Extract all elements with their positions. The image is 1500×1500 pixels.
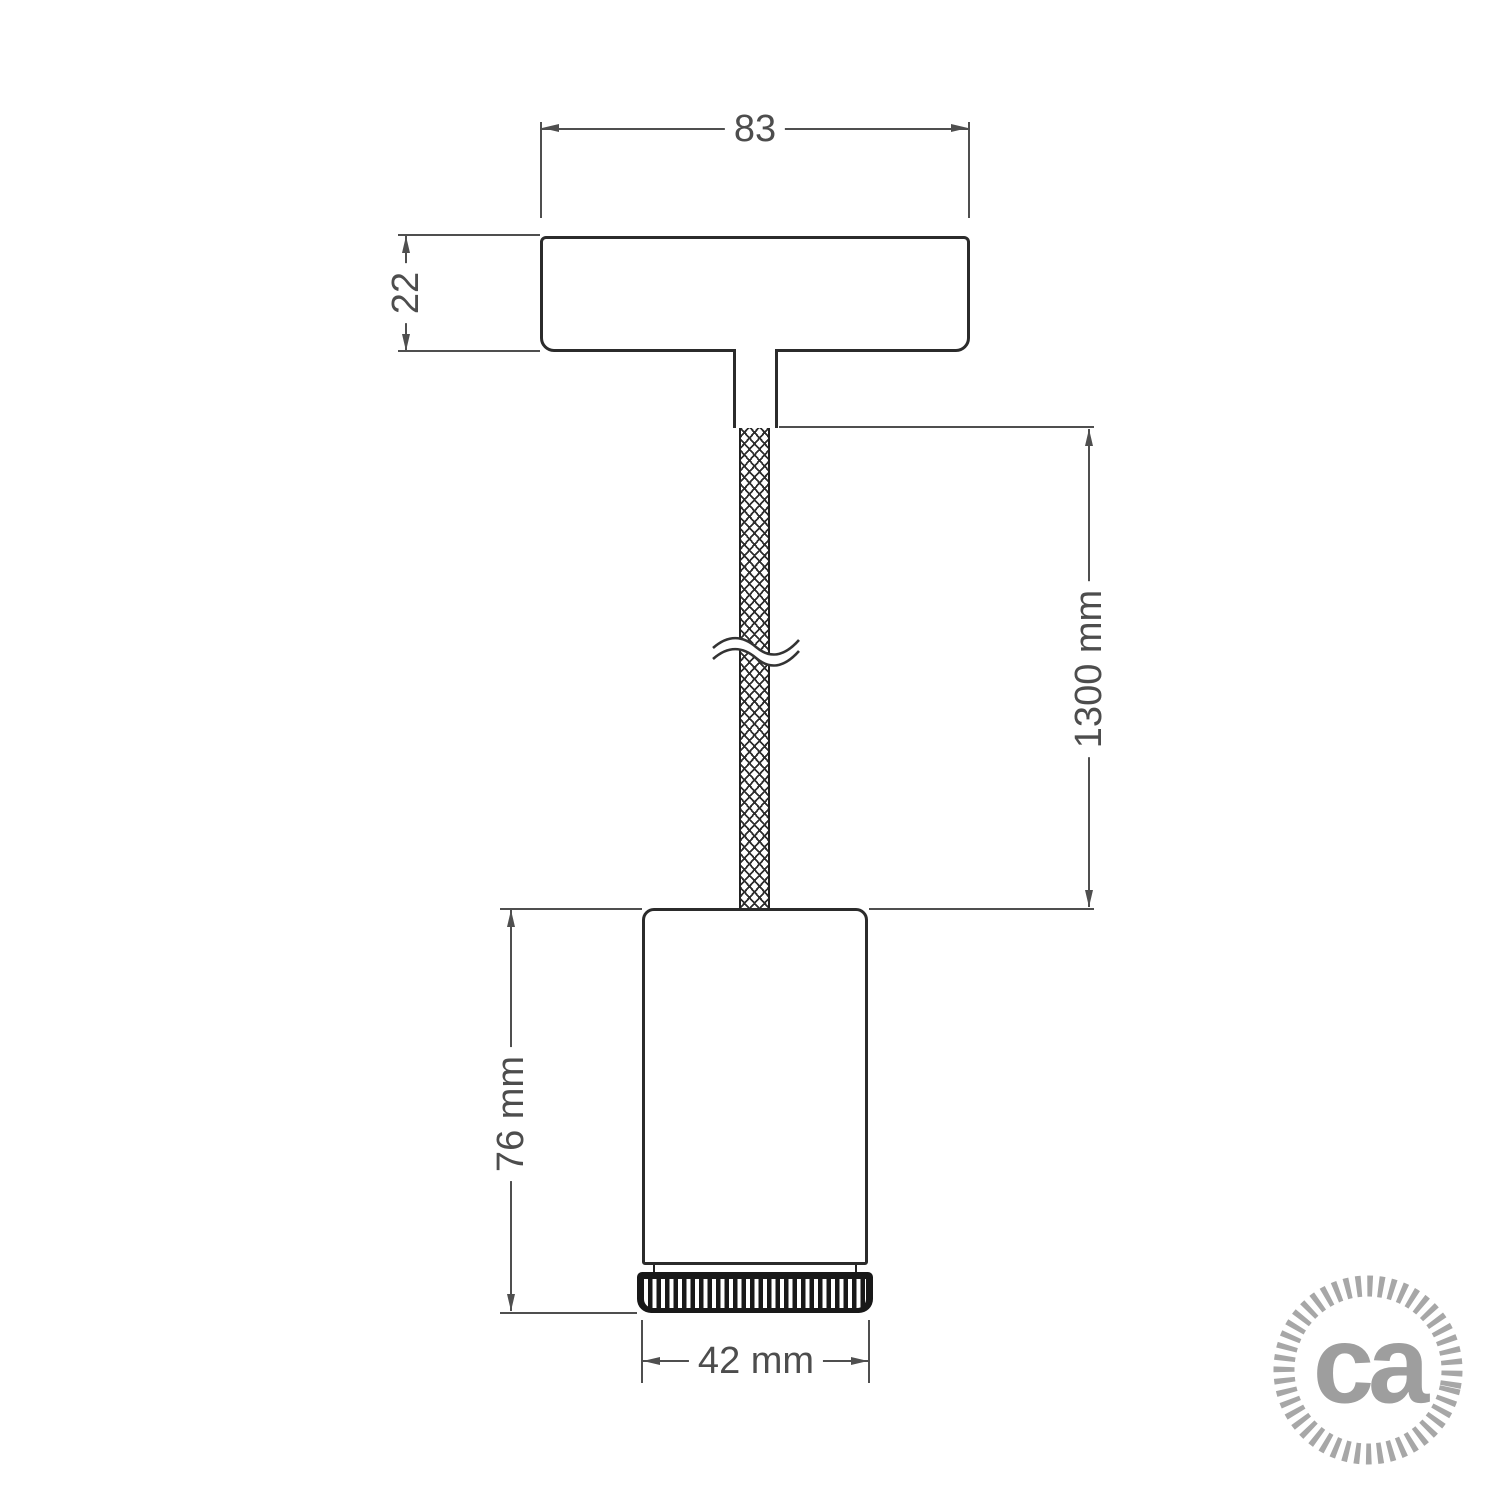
knurled-bezel — [637, 1272, 873, 1313]
logo-text: ca — [1313, 1311, 1423, 1421]
ceiling-canopy — [540, 236, 970, 352]
dim-1300-label: 1300 mm — [1067, 581, 1111, 757]
dim-1300-ext-top — [779, 426, 1094, 428]
dim-83-arrow-right — [951, 124, 968, 132]
dim-1300-arrow-up — [1085, 429, 1093, 446]
dim-83-arrow-left — [542, 124, 559, 132]
dim-76-arrow-up — [507, 910, 515, 927]
technical-drawing-canvas: 83 22 1300 mm 76 mm 42 mm ca — [0, 0, 1500, 1500]
dim-42-arrow-left — [643, 1357, 660, 1365]
spotlight-body — [642, 908, 868, 1265]
dim-83-ext-left — [540, 122, 542, 218]
brand-logo: ca — [1272, 1274, 1464, 1466]
dim-83-ext-right — [968, 122, 970, 218]
dim-22-label: 22 — [384, 263, 428, 323]
dim-76-label: 76 mm — [489, 1047, 533, 1181]
dim-1300-ext-bottom — [869, 908, 1094, 910]
dim-42-ext-left — [641, 1320, 643, 1383]
dim-22-ext-bottom — [398, 350, 540, 352]
bezel-ribs-pattern — [644, 1279, 866, 1308]
dim-22-ext-top — [398, 234, 540, 236]
dim-42-label: 42 mm — [689, 1339, 823, 1383]
canopy-cable-stem — [733, 349, 778, 428]
dim-22-arrow-up — [402, 236, 410, 253]
dim-83-label: 83 — [725, 107, 785, 151]
dim-76-ext-top — [500, 908, 642, 910]
dim-22-arrow-down — [402, 334, 410, 351]
dim-1300-arrow-down — [1085, 890, 1093, 907]
dim-42-arrow-right — [851, 1357, 868, 1365]
dim-76-arrow-down — [507, 1294, 515, 1311]
dim-42-ext-right — [868, 1320, 870, 1383]
dim-76-ext-bottom — [500, 1312, 637, 1314]
cable-break-icon — [711, 626, 801, 672]
